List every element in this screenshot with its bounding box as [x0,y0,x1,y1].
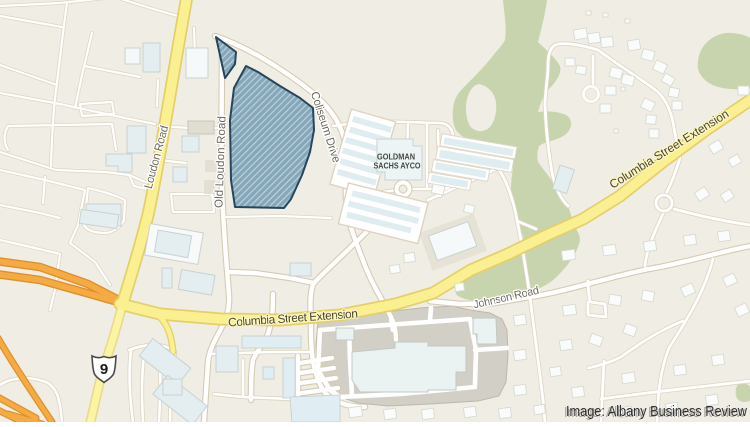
svg-text:Image: Albany Business Review: Image: Albany Business Review [566,403,747,420]
svg-text:SACHS AYCO: SACHS AYCO [374,161,421,171]
svg-text:9: 9 [100,361,108,378]
